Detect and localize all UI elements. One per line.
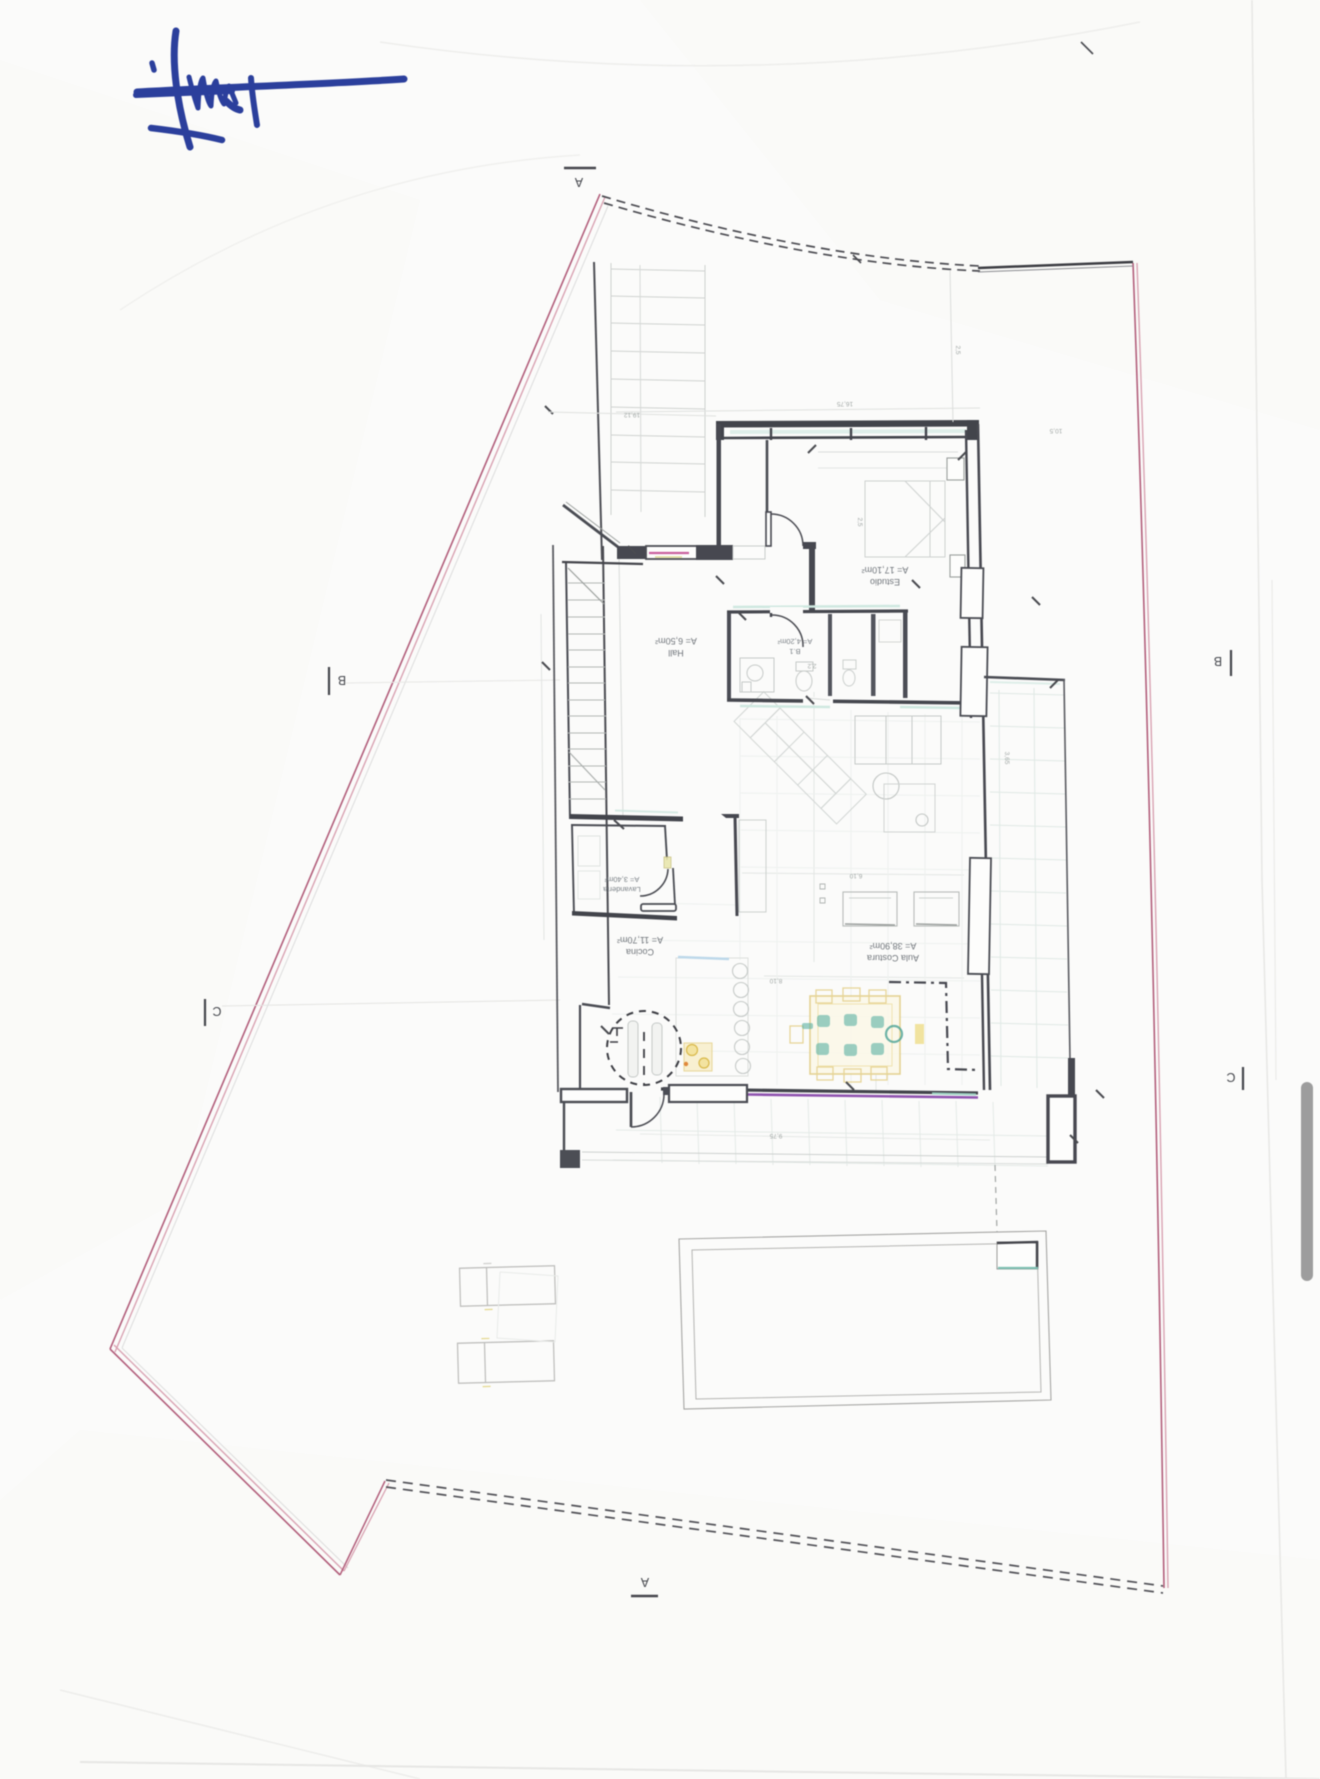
svg-text:10,5: 10,5 [1049,427,1062,434]
svg-text:A= 17,10m²: A= 17,10m² [862,565,909,575]
svg-text:2,2: 2,2 [807,662,816,669]
svg-text:A= 11,70m²: A= 11,70m² [617,935,663,945]
svg-text:C: C [212,1004,221,1018]
svg-text:6,10: 6,10 [849,872,862,879]
svg-text:Aula Costura: Aula Costura [867,953,919,963]
svg-text:16,75: 16,75 [836,400,853,407]
svg-text:B: B [1214,654,1222,668]
svg-text:Lavandería: Lavandería [602,885,640,894]
svg-text:Hall: Hall [668,648,684,658]
svg-text:A: A [574,175,583,189]
svg-text:A= 4,20m²: A= 4,20m² [777,637,812,646]
svg-text:B: B [338,673,346,687]
svg-text:3,65: 3,65 [1003,752,1010,765]
svg-text:A= 6,50m²: A= 6,50m² [655,636,697,646]
svg-text:19,12: 19,12 [623,411,640,418]
svg-text:2,5: 2,5 [954,345,961,354]
svg-text:8,10: 8,10 [769,977,782,984]
svg-text:2,5: 2,5 [856,517,863,526]
svg-text:9,75: 9,75 [769,1132,782,1139]
svg-text:Estudio: Estudio [870,577,900,587]
svg-text:A= 3,40m²: A= 3,40m² [604,875,639,884]
svg-text:A= 38,90m²: A= 38,90m² [870,941,917,951]
svg-text:C: C [1226,1070,1235,1084]
svg-text:Cocina: Cocina [626,947,654,957]
svg-text:A: A [640,1575,649,1589]
svg-text:B.1: B.1 [789,647,800,656]
